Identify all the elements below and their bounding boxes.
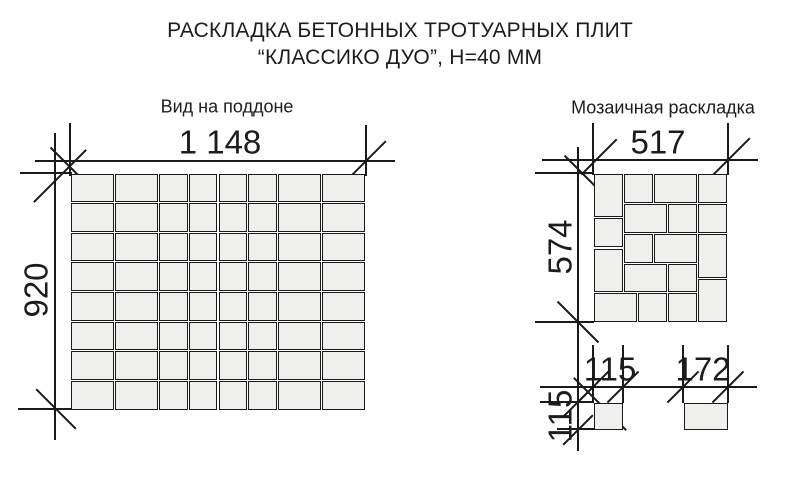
single-tile-square-115 — [594, 403, 623, 430]
drawing-canvas: РАСКЛАДКА БЕТОННЫХ ТРОТУАРНЫХ ПЛИТ “КЛАС… — [0, 0, 800, 496]
single-tiles-area — [0, 0, 800, 496]
single-tile-rect-172 — [684, 403, 728, 430]
